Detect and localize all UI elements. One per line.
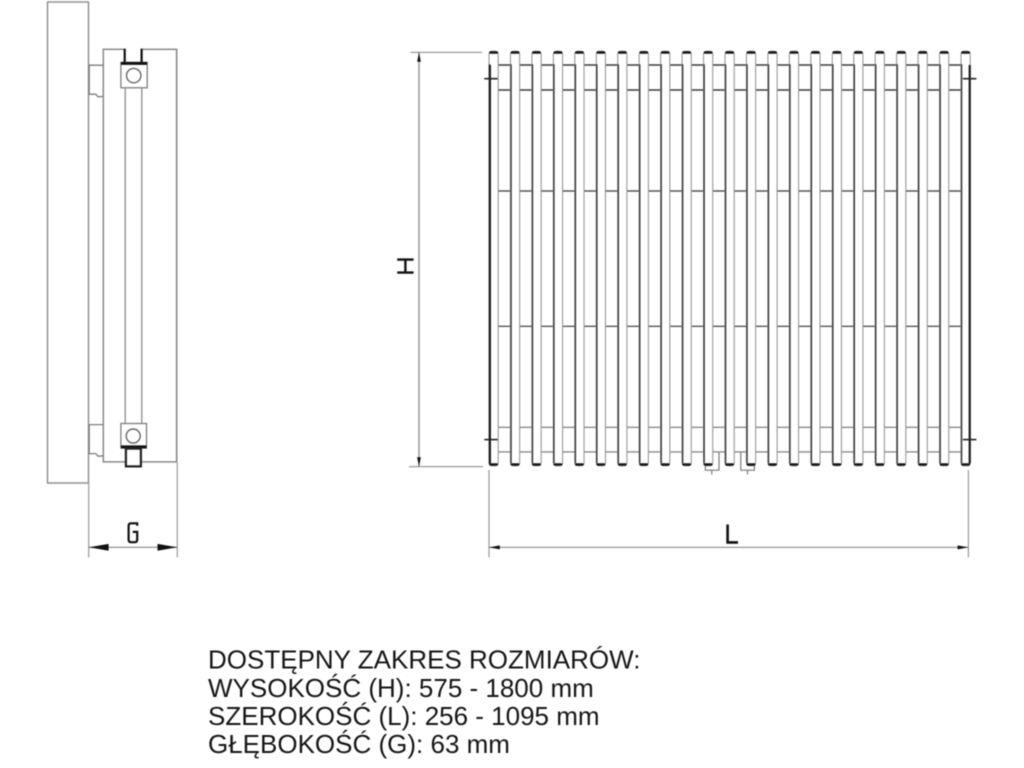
svg-text:WYSOKOŚĆ (H): 575 - 1800 mm: WYSOKOŚĆ (H): 575 - 1800 mm [208,673,594,703]
svg-text:GŁĘBOKOŚĆ (G): 63 mm: GŁĘBOKOŚĆ (G): 63 mm [208,729,510,759]
svg-text:DOSTĘPNY ZAKRES ROZMIARÓW:: DOSTĘPNY ZAKRES ROZMIARÓW: [208,645,640,675]
svg-text:SZEROKOŚĆ (L): 256 - 1095 mm: SZEROKOŚĆ (L): 256 - 1095 mm [208,701,600,731]
